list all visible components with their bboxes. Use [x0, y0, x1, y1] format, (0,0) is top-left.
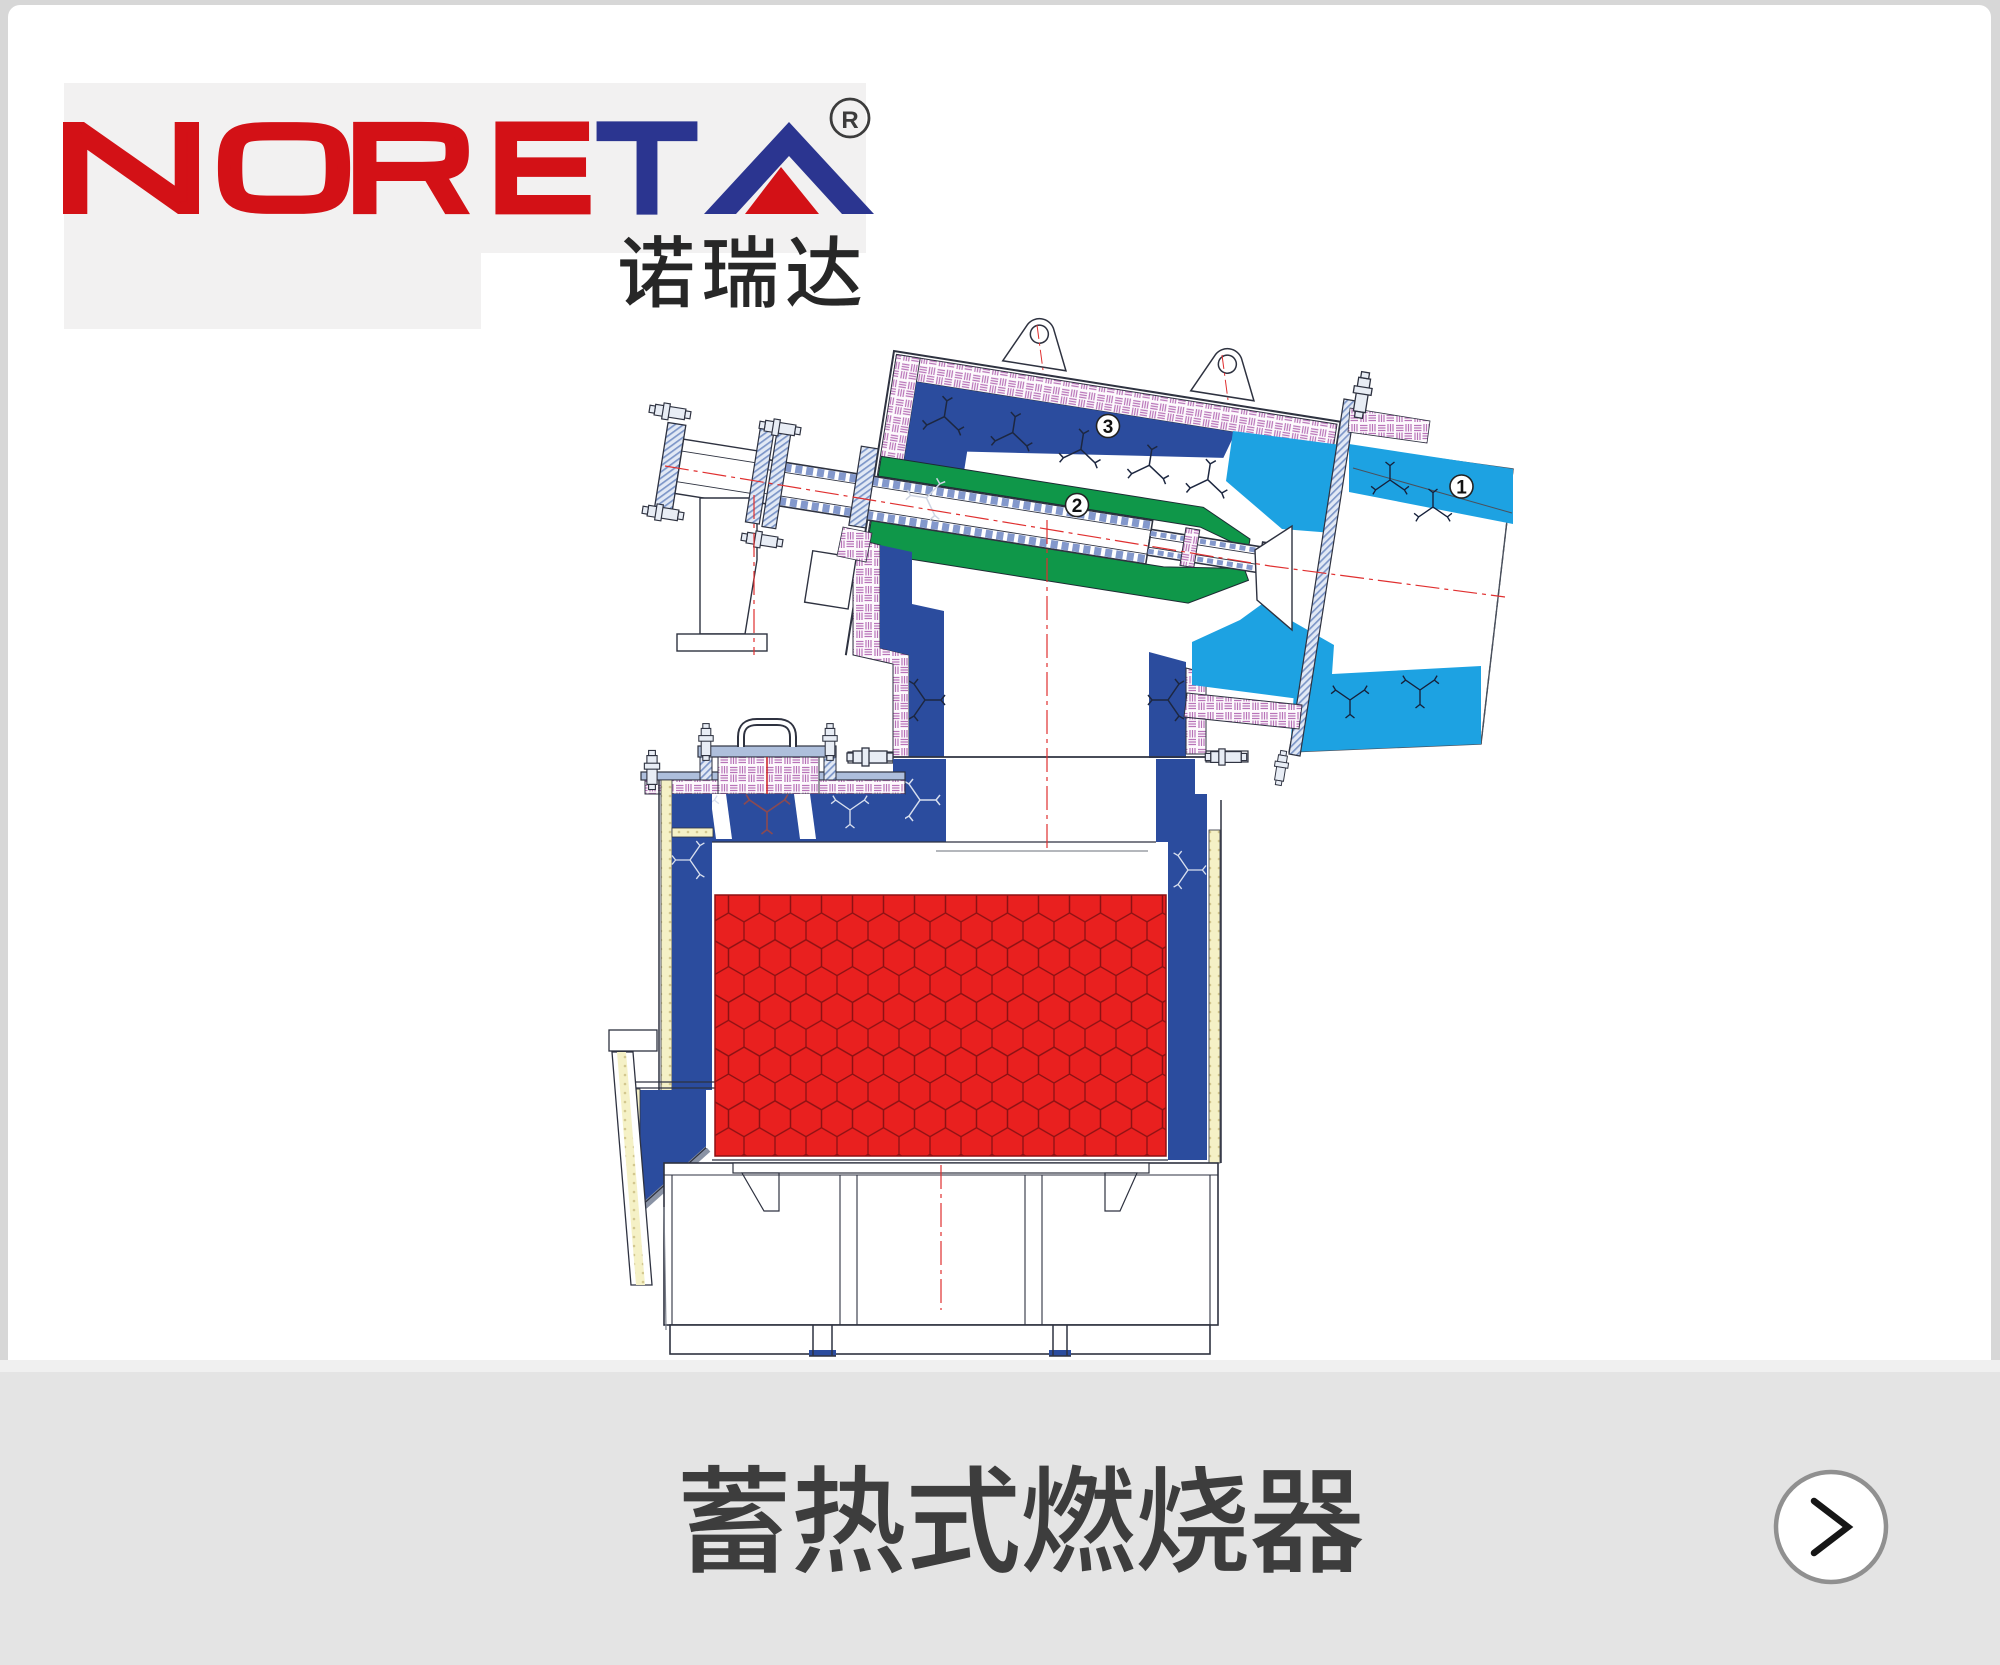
svg-text:2: 2 [1072, 496, 1083, 517]
svg-text:1: 1 [1456, 477, 1467, 498]
svg-text:R: R [841, 107, 858, 134]
svg-text:3: 3 [1103, 417, 1114, 438]
